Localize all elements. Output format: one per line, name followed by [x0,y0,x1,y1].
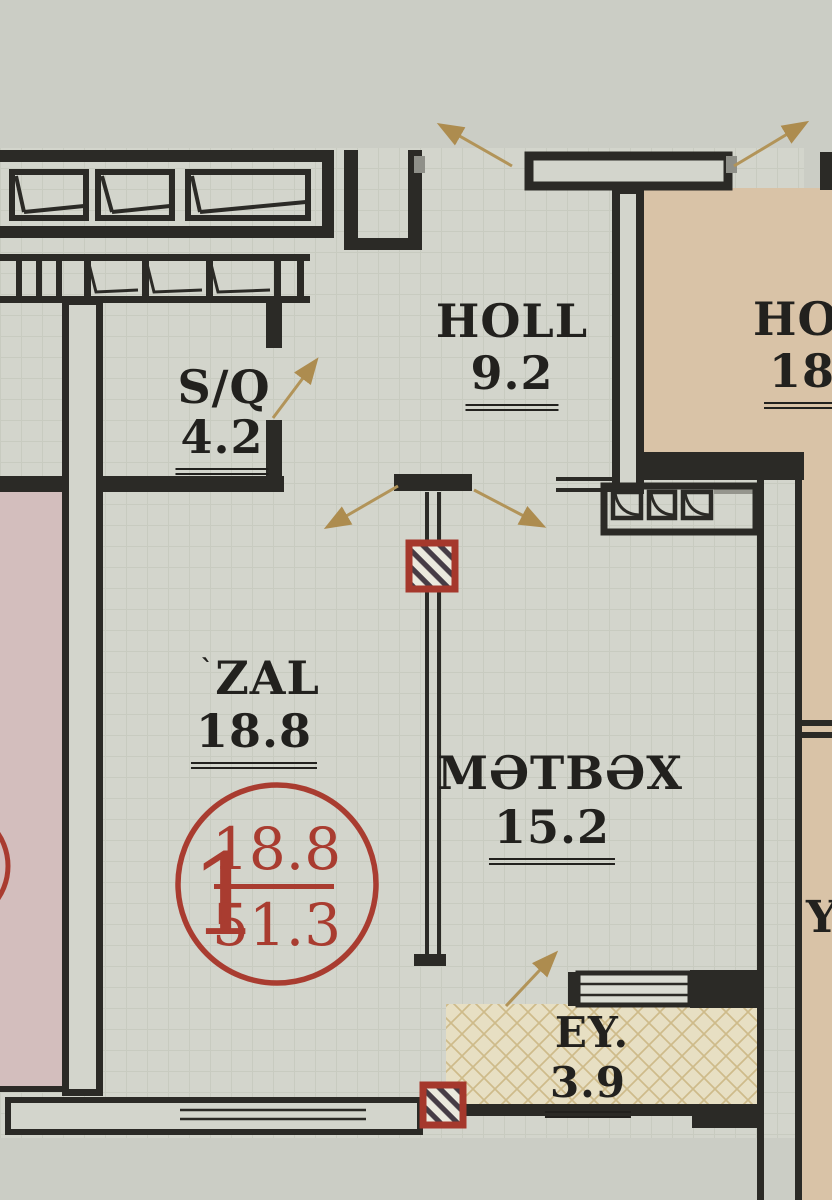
room-label-metbex: MƏTBƏX [437,750,683,796]
room-label-zal: `ZAL [200,655,320,701]
stamp-fraction: 18.8 51.3 [212,820,336,954]
area-value: 15.2 [489,800,615,865]
floorplan-drawing [0,0,832,1200]
zal-bottom-wall [8,1100,420,1132]
area-value: 3.9 [545,1058,631,1118]
holl-divider-wall [616,190,640,490]
room-label-neighbor-holl: HOLL [753,296,832,342]
area-value: 18.8 [191,704,317,769]
room-label-text: ZAL [215,651,320,705]
left-outer-wall [66,302,100,1093]
room-area-neighbor-holl: 18.3 [764,348,832,394]
stamp-fraction-bar [214,884,334,889]
room-label-neighbor-y: Y [806,896,832,940]
room-area-ey: 3.9 [545,1062,631,1104]
stamp-living-area: 18.8 [212,820,336,878]
stamp-total-area: 51.3 [212,896,336,954]
room-area-sq: 4.2 [175,414,268,460]
floor-surfaces [0,148,832,1200]
shaft-square-bottom [423,1085,463,1125]
top-t-wall [529,156,728,186]
shaft-square-top [409,543,455,589]
neighbor-tan-floor-right [800,452,832,1200]
floor-plan: S/Q 4.2 HOLL 9.2 `ZAL 18.8 MƏTBƏX 15.2 E… [0,0,832,1200]
area-value: 18.3 [764,344,832,409]
room-label-ey: EY. [555,1012,629,1054]
area-value: 4.2 [175,410,268,475]
stray-mark: ` [200,657,214,683]
room-label-sq: S/Q [177,364,270,410]
room-area-zal: 18.8 [191,708,317,754]
room-area-holl: 9.2 [465,350,558,396]
room-area-metbex: 15.2 [489,804,615,850]
room-label-holl: HOLL [436,298,588,344]
neighbor-pink-floor [0,492,62,1088]
area-value: 9.2 [465,346,558,411]
